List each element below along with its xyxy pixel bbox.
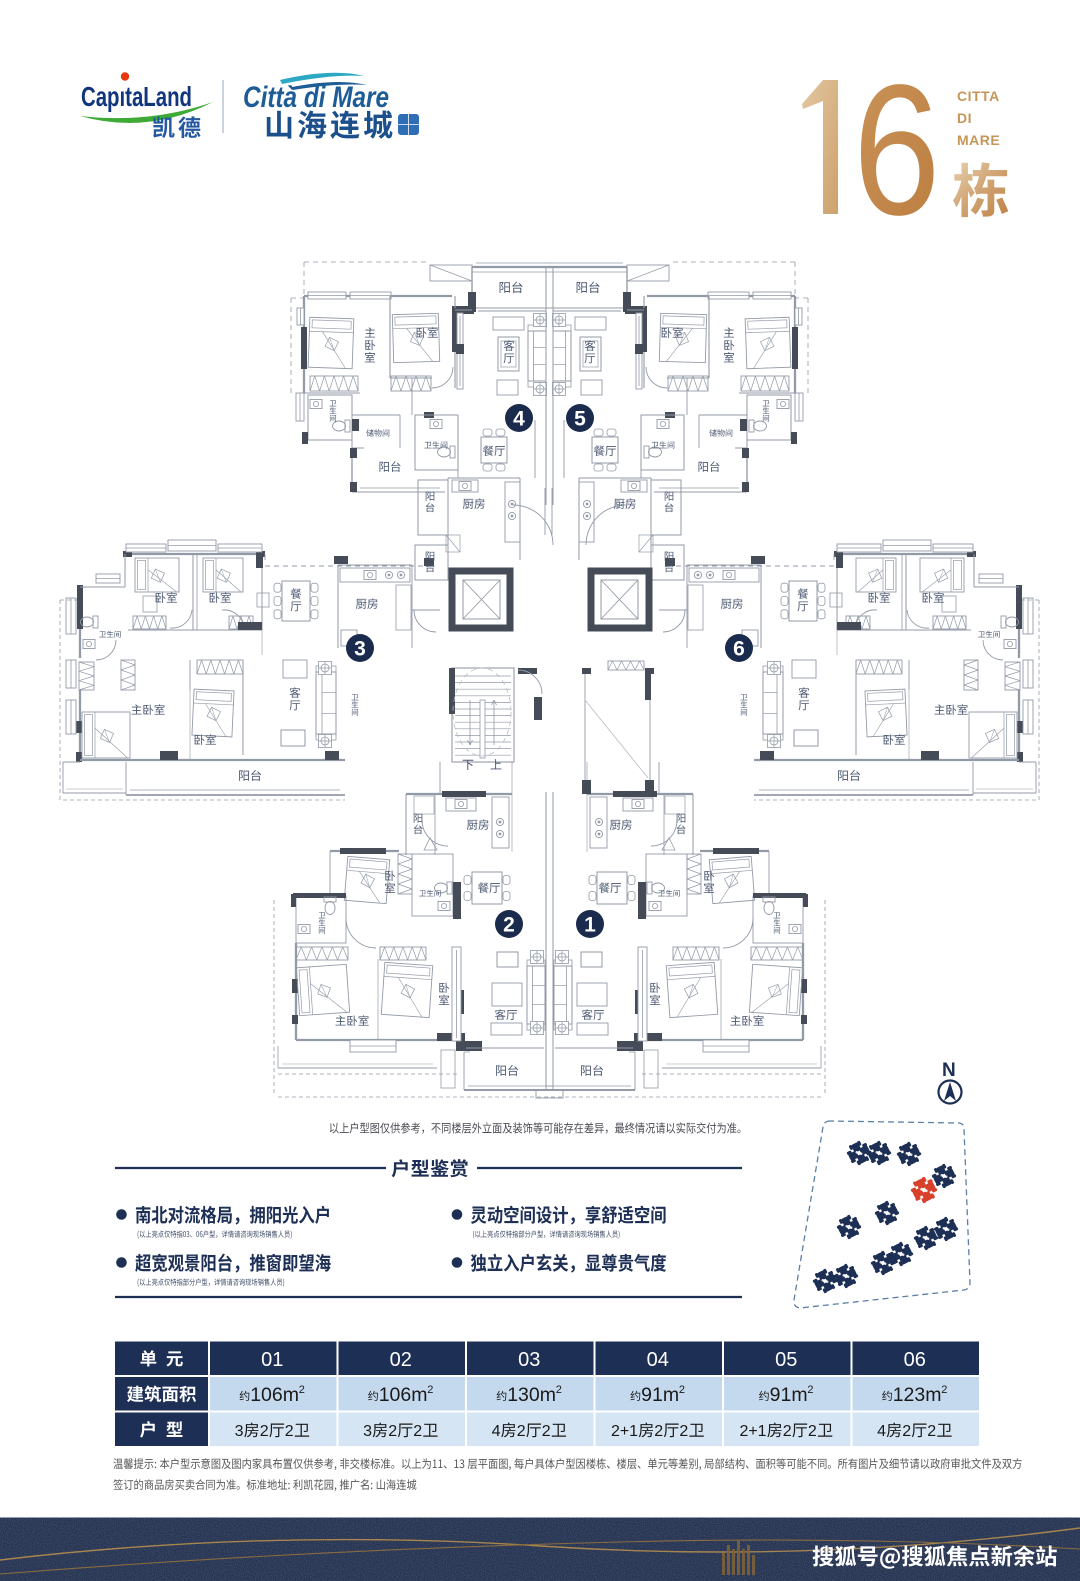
svg-text:3: 3 [354, 638, 366, 661]
svg-text:2: 2 [927, 1423, 936, 1440]
svg-text:CITTA: CITTA [957, 88, 1000, 104]
svg-text:2: 2 [260, 1423, 269, 1440]
svg-text:2+1: 2+1 [739, 1423, 766, 1440]
svg-text:04: 04 [647, 1349, 669, 1371]
svg-text:106m: 106m [379, 1384, 428, 1406]
svg-text:2: 2 [285, 1423, 294, 1440]
svg-text:2: 2 [783, 1423, 792, 1440]
svg-text:2: 2 [542, 1423, 551, 1440]
svg-text:2: 2 [517, 1423, 526, 1440]
svg-text:2: 2 [654, 1423, 663, 1440]
svg-text:91m: 91m [770, 1384, 808, 1406]
svg-text:2: 2 [808, 1423, 817, 1440]
svg-text:02: 02 [390, 1349, 412, 1371]
svg-text:3: 3 [235, 1423, 244, 1440]
svg-text:2: 2 [902, 1423, 911, 1440]
svg-text:2: 2 [941, 1384, 947, 1396]
svg-text:2: 2 [679, 1423, 688, 1440]
svg-text:DI: DI [957, 110, 972, 126]
svg-text:2: 2 [807, 1384, 813, 1396]
svg-text:2+1: 2+1 [611, 1423, 638, 1440]
svg-text:05: 05 [775, 1349, 797, 1371]
svg-text:5: 5 [574, 408, 586, 431]
svg-text:3: 3 [363, 1423, 372, 1440]
svg-text:106m: 106m [250, 1384, 299, 1406]
svg-text:N: N [942, 1060, 956, 1081]
svg-text:03: 03 [518, 1349, 540, 1371]
svg-text:4: 4 [492, 1423, 501, 1440]
svg-text:MARE: MARE [957, 132, 1000, 148]
svg-text:4: 4 [877, 1423, 886, 1440]
svg-text:6: 6 [853, 47, 940, 254]
svg-text:123m: 123m [893, 1384, 942, 1406]
svg-text:2: 2 [427, 1384, 433, 1396]
svg-text:1: 1 [584, 914, 596, 937]
svg-text:06: 06 [904, 1349, 926, 1371]
svg-text:130m: 130m [507, 1384, 556, 1406]
svg-text:2: 2 [388, 1423, 397, 1440]
svg-text:2: 2 [413, 1423, 422, 1440]
svg-text:2: 2 [503, 914, 515, 937]
svg-text:6: 6 [733, 638, 745, 661]
svg-text:2: 2 [679, 1384, 685, 1396]
svg-text:91m: 91m [641, 1384, 679, 1406]
svg-text:4: 4 [513, 408, 525, 431]
svg-text:CapıtaLand: CapıtaLand [81, 81, 192, 112]
svg-text:01: 01 [261, 1349, 283, 1371]
svg-text:2: 2 [299, 1384, 305, 1396]
svg-text:2: 2 [556, 1384, 562, 1396]
